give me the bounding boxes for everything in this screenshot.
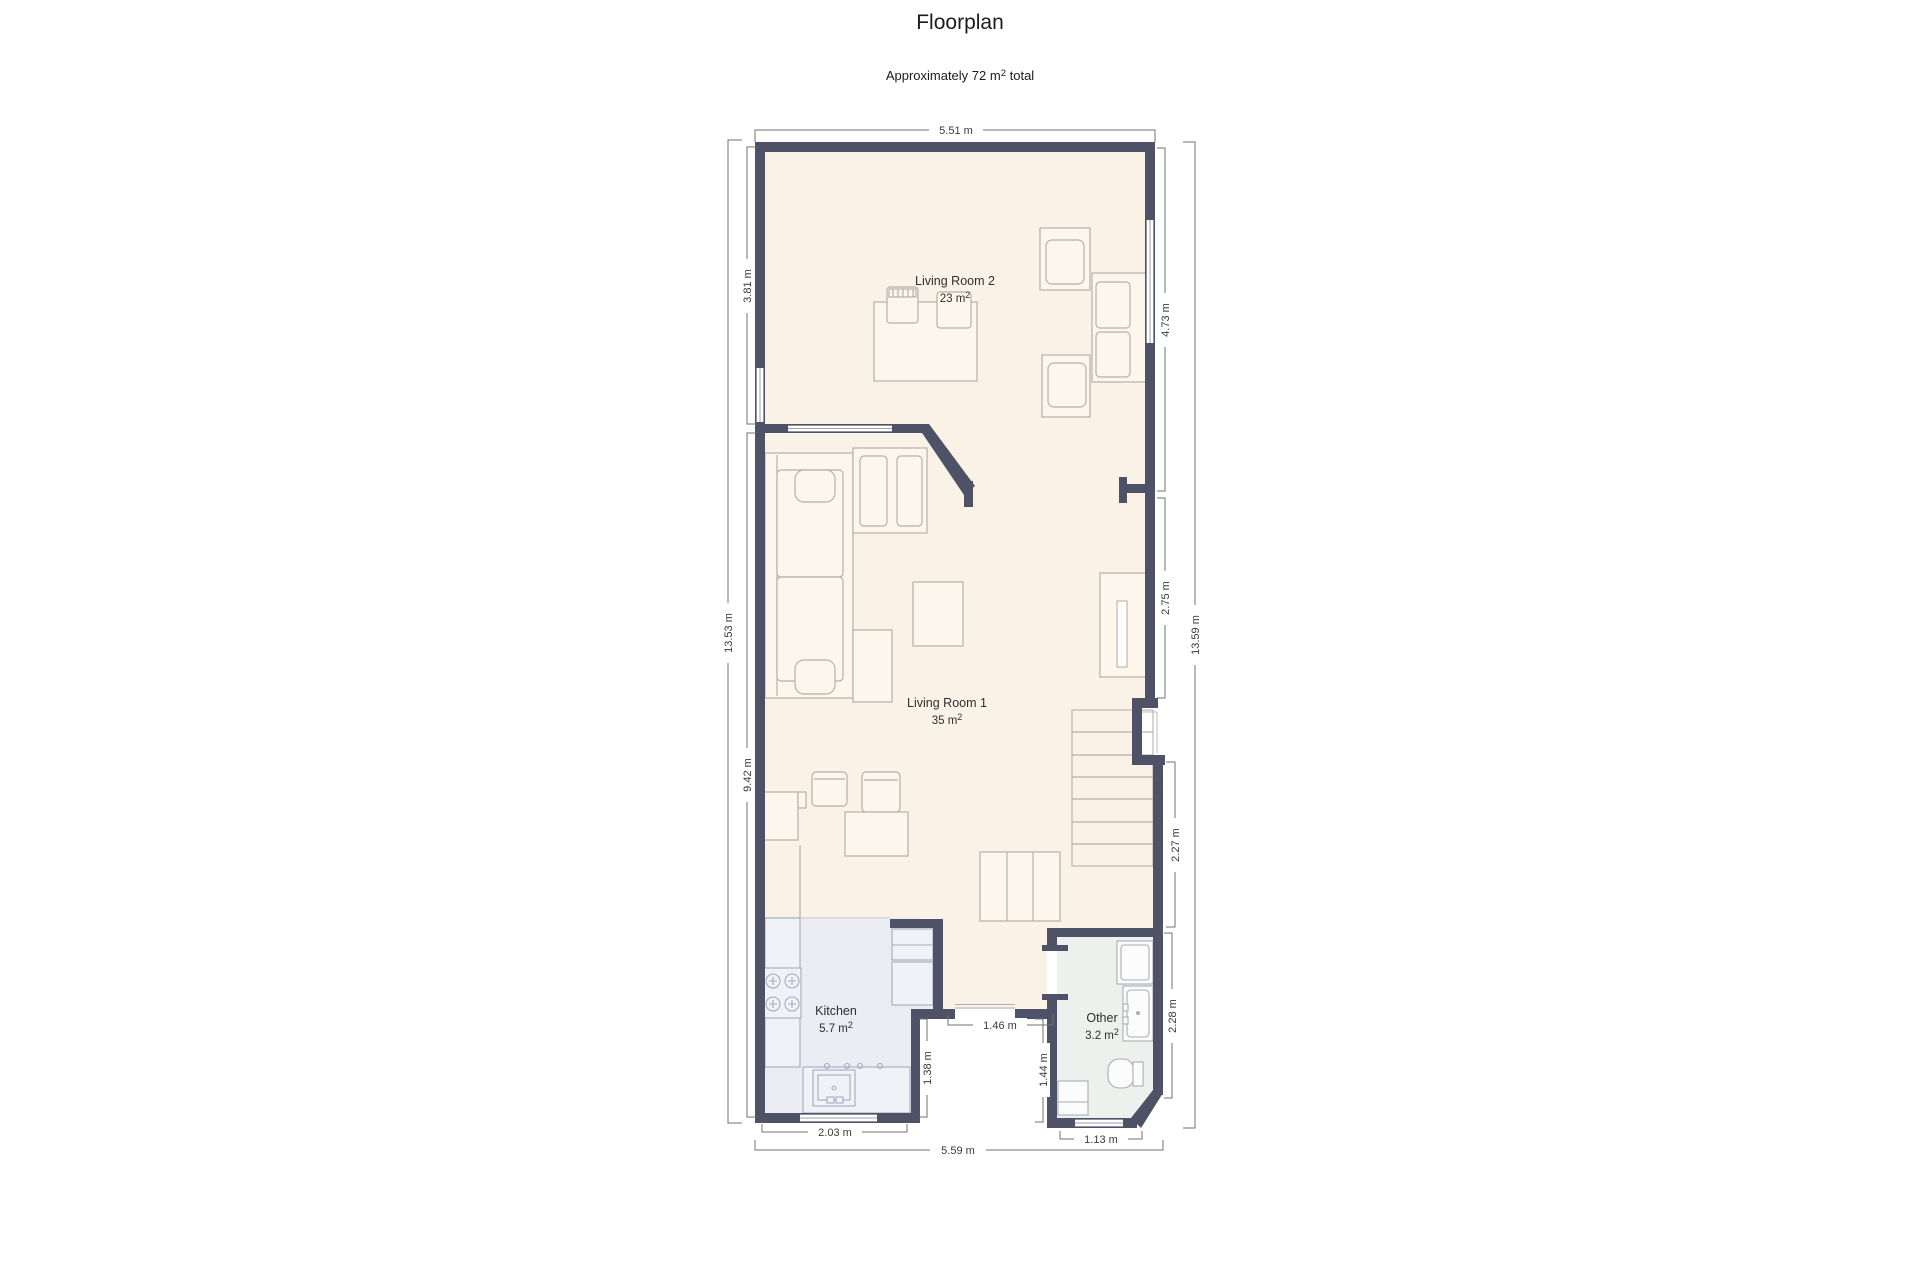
vanity-handle [1123,1004,1128,1011]
dim-lower-height: 9.42 m [742,758,754,792]
side-table [853,630,892,702]
entry-opening [955,1009,1015,1019]
armchair-1-cushion [1046,240,1084,284]
wall-left [755,142,765,1123]
dim-kitchen-width: 2.03 m [818,1127,852,1139]
dining-chair [862,772,900,812]
page-title: Floorplan [916,11,1004,34]
living-room-1-label: Living Room 1 [907,696,987,710]
wall-top [755,142,1155,152]
dim-top: 5.51 m [939,125,973,137]
dim-other-recess: 1.44 m [1038,1053,1050,1087]
other-room-area: 3.2 m2 [1085,1027,1119,1042]
sink-control [836,1097,843,1103]
living-room-2-label: Living Room 2 [915,274,995,288]
dim-stairs: 2.27 m [1170,828,1182,862]
dim-other-width: 1.13 m [1084,1134,1118,1146]
area-value: 23 m [940,293,966,305]
subtitle-suffix: total [1006,68,1034,83]
fridge [892,962,933,1005]
dim-left-total: 13.53 m [723,613,735,653]
sofa-pillow [795,660,835,694]
area-value: 3.2 m [1085,1030,1114,1042]
chaise-cushion [860,456,887,526]
area-superscript: 2 [957,712,962,722]
door-jamb-right [1119,477,1127,503]
bath-door-jamb [1042,945,1068,951]
toilet-tank [1133,1062,1143,1086]
dim-lr2-height: 3.81 m [742,269,754,303]
area-superscript: 2 [965,290,970,300]
subtitle-text: Approximately 72 m [886,68,1001,83]
page-subtitle: Approximately 72 m2 total [886,68,1034,83]
bath-door-jamb [1042,994,1068,1000]
wall-entry-right [1015,1009,1047,1019]
bath-door-opening [1047,951,1057,994]
bath-shelf [1058,1081,1088,1115]
dim-right-total: 13.59 m [1190,615,1202,655]
toilet-bowl [1108,1059,1134,1088]
sink-control [827,1097,834,1103]
area-superscript: 2 [848,1020,853,1030]
area-value: 5.7 m [819,1023,848,1035]
coffee-table [913,582,963,646]
dining-chair [812,772,847,806]
wall-kitchen-right [911,1009,920,1123]
armchair-2-cushion [1048,363,1086,407]
sink-basin [818,1075,850,1100]
kitchen-area: 5.7 m2 [819,1020,853,1035]
door-jamb-left [964,481,973,507]
dim-kitchen-recess: 1.38 m [922,1051,934,1085]
dim-mid-right: 2.75 m [1160,581,1172,615]
wall-stub [1127,484,1147,493]
wall-notch-left [1132,708,1142,755]
sofa-cushion [1096,282,1130,328]
dim-lr2-right: 4.73 m [1160,303,1172,337]
wall-nook-top [890,919,943,928]
wall-jog-top [1132,698,1158,708]
washer-inner [1121,945,1149,980]
vanity-handle [1123,1017,1128,1024]
other-room-label: Other [1086,1011,1117,1025]
dim-other-right: 2.28 m [1167,999,1179,1033]
dim-bottom: 5.59 m [941,1145,975,1157]
sideboard [762,792,798,840]
sofa-cushion [1096,332,1130,377]
sofa-pillow [795,470,835,502]
area-value: 35 m [932,715,958,727]
kitchen-label: Kitchen [815,1004,857,1018]
area-superscript: 2 [1114,1027,1119,1037]
radiator [798,792,806,808]
dim-entry: 1.46 m [983,1020,1017,1032]
tv [1117,601,1127,667]
wardrobe [980,852,1060,921]
wall-nook-right [933,928,943,1009]
wall-bath-top [1047,928,1163,937]
floorplan-page: Floorplan Approximately 72 m2 total [0,0,1920,1280]
floorplan-drawing: Floorplan Approximately 72 m2 total [0,0,1920,1280]
wall-jog-bottom [1132,755,1165,765]
chaise-cushion [897,456,922,526]
vanity-drain-icon [1136,1011,1140,1015]
dining-table [845,812,908,856]
